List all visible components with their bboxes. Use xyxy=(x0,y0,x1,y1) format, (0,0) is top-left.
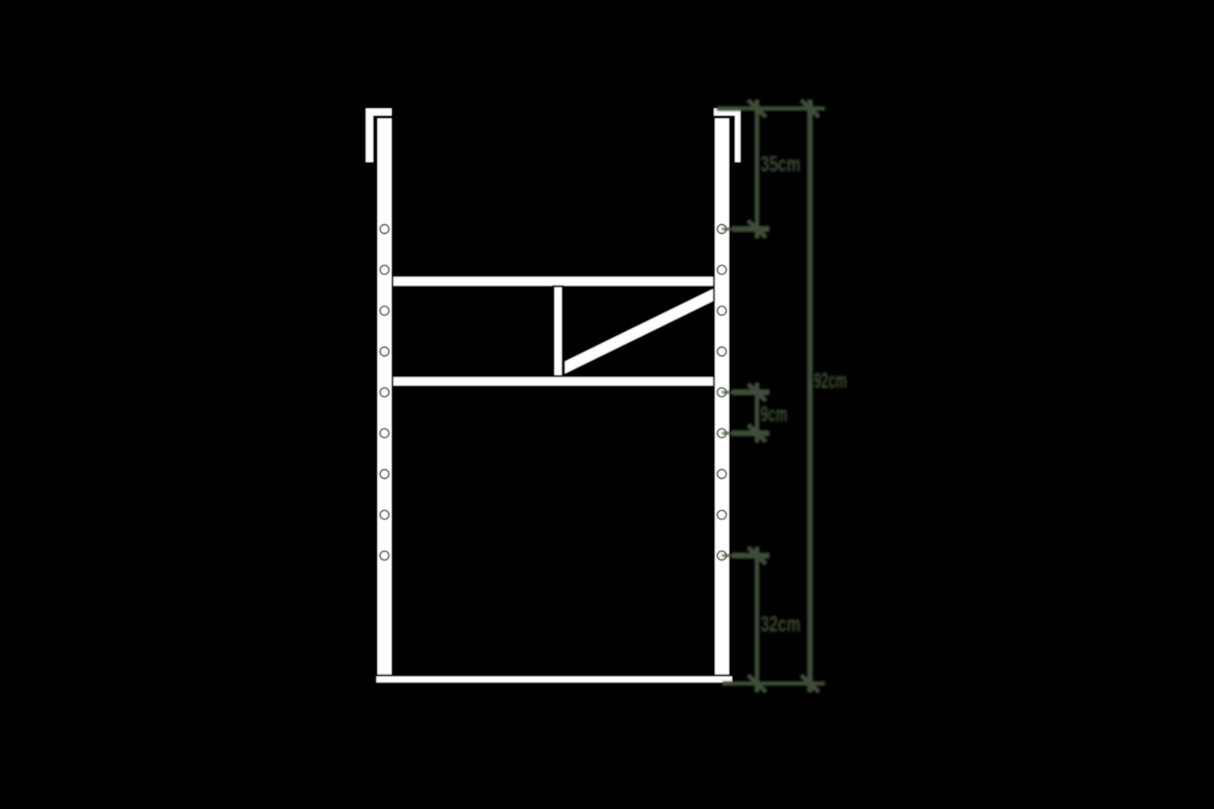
svg-text:92cm: 92cm xyxy=(814,368,847,393)
svg-text:32cm: 32cm xyxy=(761,612,801,637)
svg-text:35cm: 35cm xyxy=(761,152,801,177)
svg-text:9cm: 9cm xyxy=(761,402,788,427)
